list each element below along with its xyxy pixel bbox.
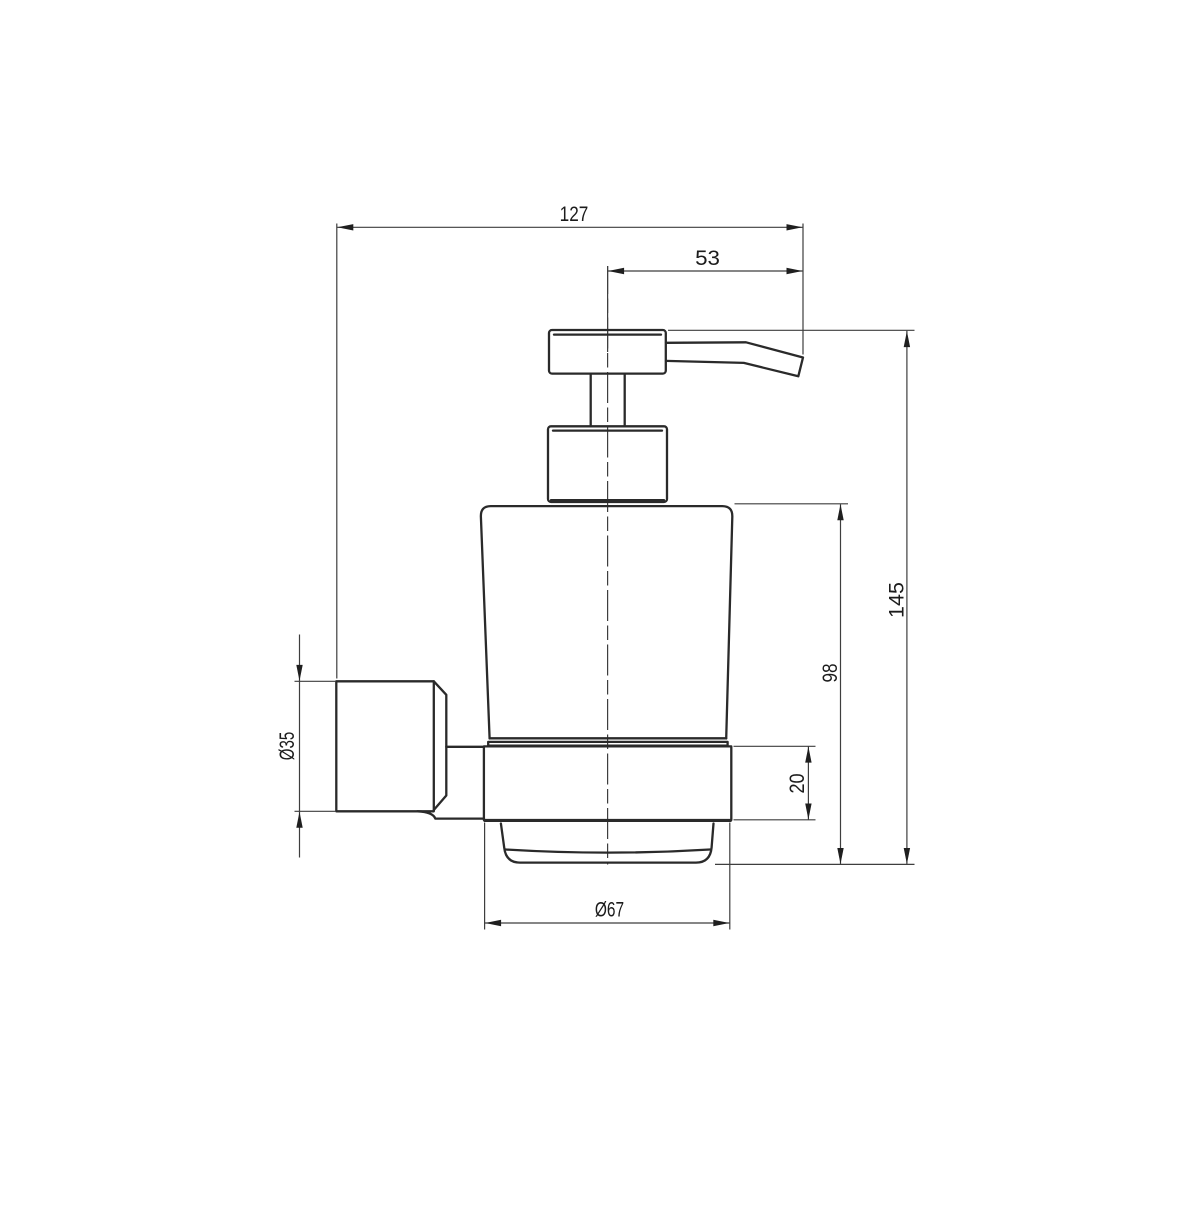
svg-text:Ø35: Ø35 [274, 732, 298, 760]
svg-text:98: 98 [818, 663, 842, 682]
svg-text:Ø67: Ø67 [595, 897, 624, 921]
svg-text:53: 53 [695, 245, 720, 270]
svg-text:20: 20 [785, 773, 809, 793]
svg-text:145: 145 [884, 582, 908, 618]
svg-text:127: 127 [560, 202, 589, 226]
